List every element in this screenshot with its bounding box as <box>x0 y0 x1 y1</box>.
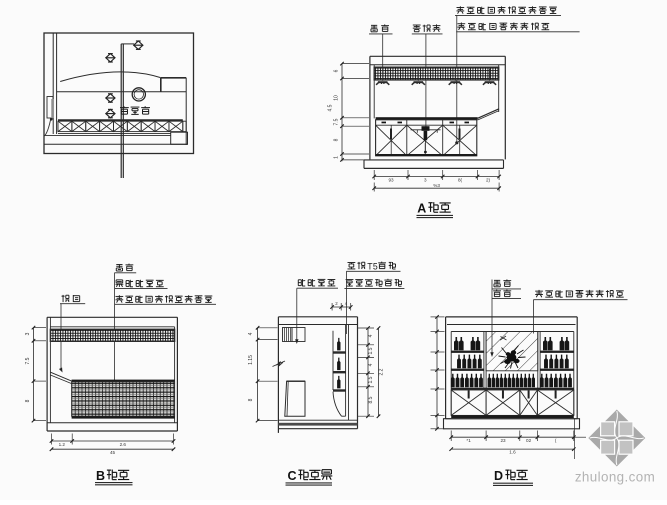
svg-text:10: 10 <box>334 95 340 101</box>
svg-text:B: B <box>96 469 105 483</box>
svg-text:zhulong.com: zhulong.com <box>575 470 655 485</box>
svg-text:4: 4 <box>368 334 374 337</box>
svg-text:1.15: 1.15 <box>248 355 254 365</box>
svg-text:1.5: 1.5 <box>368 347 374 354</box>
svg-text:4.5: 4.5 <box>328 104 334 111</box>
svg-text:02: 02 <box>526 438 532 443</box>
svg-text:23: 23 <box>500 438 506 443</box>
svg-text:8: 8 <box>25 399 31 402</box>
svg-text:8.5: 8.5 <box>368 396 374 403</box>
svg-text:4: 4 <box>368 363 374 366</box>
svg-text:93: 93 <box>388 178 394 183</box>
svg-text:4: 4 <box>248 332 254 335</box>
svg-text:1.5: 1.5 <box>368 376 374 383</box>
svg-text:8: 8 <box>334 138 340 141</box>
svg-text:%3: %3 <box>433 183 440 188</box>
svg-text:D: D <box>494 469 503 483</box>
svg-text:6: 6 <box>334 69 340 72</box>
svg-text:8(: 8( <box>458 178 463 183</box>
svg-text:7.5: 7.5 <box>25 357 31 364</box>
svg-text:2.6: 2.6 <box>120 442 127 447</box>
svg-text:1.2: 1.2 <box>59 442 66 447</box>
svg-text:1.6: 1.6 <box>509 450 516 455</box>
svg-text:2): 2) <box>486 178 491 183</box>
svg-text:C: C <box>288 469 297 483</box>
svg-text:*1: *1 <box>466 438 471 443</box>
svg-text:1: 1 <box>334 156 340 159</box>
svg-text:2.2: 2.2 <box>379 368 385 375</box>
svg-text:3: 3 <box>424 178 427 183</box>
svg-text:45: 45 <box>110 450 116 455</box>
svg-text:5: 5 <box>373 261 378 271</box>
svg-text:8: 8 <box>248 398 254 401</box>
svg-text:7.5: 7.5 <box>334 118 340 125</box>
svg-text:3: 3 <box>25 332 31 335</box>
svg-text:A: A <box>417 202 426 216</box>
